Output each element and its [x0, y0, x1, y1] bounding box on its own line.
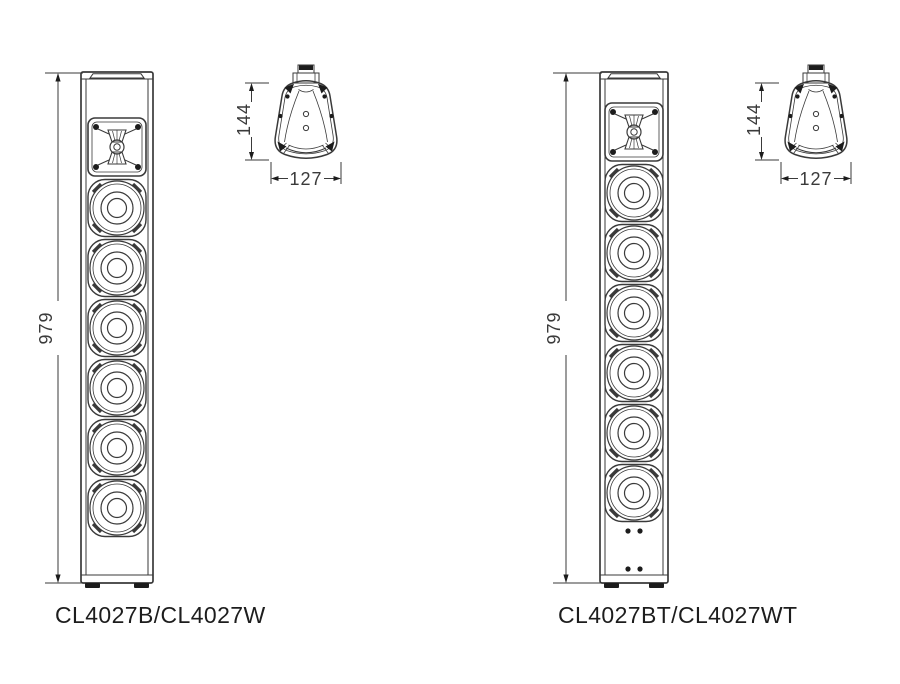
- tweeter-drawing: [605, 103, 663, 161]
- front-view-drawing-left: 979: [20, 58, 170, 603]
- woofer-drawing: [88, 420, 146, 477]
- spec-sheet: 979 144: [0, 0, 900, 684]
- height-dimension-right: 979: [544, 73, 602, 583]
- depth-dimension-right: 144: [745, 83, 779, 160]
- model-label-right: CL4027BT/CL4027WT: [558, 602, 797, 629]
- topview-body: [275, 65, 337, 158]
- width-dim-label: 127: [799, 169, 832, 189]
- front-view-drawing-right: 979: [530, 58, 690, 603]
- top-view-drawing-left: 144 127: [235, 58, 365, 198]
- woofer-drawing: [605, 225, 663, 282]
- woofer-drawing: [88, 480, 146, 537]
- woofer-drawing: [88, 360, 146, 417]
- woofer-drawing: [605, 165, 663, 222]
- top-view-drawing-right: 144 127: [745, 58, 875, 198]
- tweeter-drawing: [88, 118, 146, 176]
- topview-body: [785, 65, 847, 158]
- foot-right: [134, 583, 149, 588]
- woofer-drawing: [88, 240, 146, 297]
- depth-dim-label: 144: [745, 103, 764, 136]
- foot-left: [85, 583, 100, 588]
- height-dim-label: 979: [544, 311, 564, 344]
- width-dimension-left: 127: [271, 162, 341, 189]
- terminal-dots: [625, 528, 642, 571]
- woofer-drawing: [605, 405, 663, 462]
- woofer-drawing: [605, 345, 663, 402]
- depth-dim-label: 144: [235, 103, 254, 136]
- cabinet-right: [600, 72, 668, 588]
- width-dim-label: 127: [289, 169, 322, 189]
- height-dimension-left: 979: [36, 73, 83, 583]
- depth-dimension-left: 144: [235, 83, 269, 160]
- foot-right: [649, 583, 664, 588]
- woofer-drawing: [88, 180, 146, 237]
- height-dim-label: 979: [36, 311, 56, 344]
- model-label-left: CL4027B/CL4027W: [55, 602, 266, 629]
- foot-left: [604, 583, 619, 588]
- woofer-drawing: [605, 465, 663, 522]
- woofer-drawing: [605, 285, 663, 342]
- width-dimension-right: 127: [781, 162, 851, 189]
- cabinet-left: [81, 72, 153, 588]
- woofer-drawing: [88, 300, 146, 357]
